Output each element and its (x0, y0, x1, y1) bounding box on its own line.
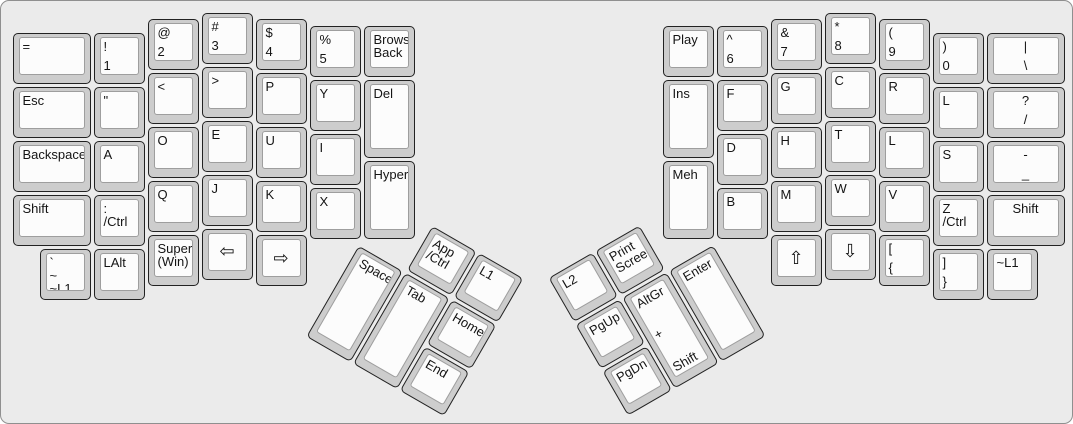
key-label: % (320, 33, 351, 46)
key-face: #3 (208, 17, 247, 55)
key-label: P (266, 80, 297, 93)
key-face: K (262, 185, 301, 223)
key-face: Y (316, 84, 355, 122)
key-meh[interactable]: Meh (663, 161, 714, 239)
key-j[interactable]: J (202, 175, 253, 226)
key-amp-7[interactable]: &7 (771, 19, 822, 70)
key-del[interactable]: Del (364, 80, 415, 158)
key-label: Home (451, 310, 484, 337)
key-label: R (889, 80, 920, 93)
key-label: Esc (23, 94, 81, 107)
key-face: Backspace (19, 145, 85, 183)
key-face: Play (669, 30, 708, 68)
key-label: Y (320, 87, 351, 100)
key-label: O (158, 134, 189, 147)
key-label: Tab (404, 283, 437, 310)
key-label: L2 (560, 263, 593, 290)
key-arrow-up[interactable]: ⇧ (771, 235, 822, 286)
key-label: Shift (1012, 202, 1038, 215)
key-question-slash[interactable]: ?/ (987, 87, 1065, 138)
key-greater-than[interactable]: > (202, 67, 253, 118)
key-face: LAlt (100, 253, 139, 291)
key-face: ]} (939, 253, 978, 291)
key-face: *8 (831, 17, 870, 55)
key-label: Del (374, 87, 405, 100)
key-b[interactable]: B (717, 188, 768, 239)
key-face: |\ (993, 37, 1059, 75)
key-label: 4 (266, 45, 297, 58)
key-face: G (777, 77, 816, 115)
key-label: ^ (727, 33, 758, 46)
key-label: H (781, 134, 812, 147)
key-label: L1 (478, 263, 511, 290)
key-g[interactable]: G (771, 73, 822, 124)
key-a[interactable]: A (94, 141, 145, 192)
key-k[interactable]: K (256, 181, 307, 232)
key-lalt[interactable]: LAlt (94, 249, 145, 300)
key-face: J (208, 179, 247, 217)
key-face: O (154, 131, 193, 169)
key-label: 6 (727, 52, 758, 65)
key-face: Ins (669, 84, 708, 149)
key-o[interactable]: O (148, 127, 199, 178)
key-label: V (889, 188, 920, 201)
key-ins[interactable]: Ins (663, 80, 714, 158)
key-label: ? (1022, 94, 1029, 107)
key-face: Super(Win) (154, 239, 193, 277)
key-face: S (939, 145, 978, 183)
key-label: U (266, 134, 297, 147)
key-label: W (835, 182, 866, 195)
key-label: /Ctrl (943, 215, 974, 228)
key-asterisk-8[interactable]: *8 (825, 13, 876, 64)
key-label: LAlt (104, 256, 135, 269)
key-l-top-row[interactable]: L (933, 87, 984, 138)
key-face: -_ (993, 145, 1059, 183)
key-at-2[interactable]: @2 (148, 19, 199, 70)
key-w[interactable]: W (825, 175, 876, 226)
key-label: End (424, 357, 457, 384)
key-face: ^6 (723, 30, 762, 68)
key-face: " (100, 91, 139, 129)
key-face: !1 (100, 37, 139, 75)
key-face: Shift (993, 199, 1059, 237)
key-label: * (835, 20, 866, 33)
key-hyper[interactable]: Hyper (364, 161, 415, 239)
key-face: ⇦ (208, 233, 247, 271)
key-rparen-0[interactable]: )0 (933, 33, 984, 84)
key-arrow-down[interactable]: ⇩ (825, 229, 876, 280)
key-label: /Ctrl (104, 215, 135, 228)
key-face: > (208, 71, 247, 109)
key-label: 7 (781, 45, 812, 58)
key-label: S (943, 148, 974, 161)
key-label: Hyper (374, 168, 405, 181)
key-label: ~ (50, 269, 81, 282)
key-d[interactable]: D (717, 134, 768, 185)
key-face: Shift (19, 199, 85, 237)
key-lparen-9[interactable]: (9 (879, 19, 930, 70)
key-x[interactable]: X (310, 188, 361, 239)
key-face: (9 (885, 23, 924, 61)
key-face: F (723, 84, 762, 122)
key-grave-tilde-l1[interactable]: `~~L1 (40, 249, 91, 300)
key-equals[interactable]: = (13, 33, 91, 84)
key-s[interactable]: S (933, 141, 984, 192)
key-label: Z (943, 202, 974, 215)
key-label: & (781, 26, 812, 39)
key-face: ⇩ (831, 233, 870, 271)
key-face: BrowserBack (370, 30, 409, 68)
key-label: K (266, 188, 297, 201)
key-dollar-4[interactable]: $4 (256, 19, 307, 70)
key-label: X (320, 195, 351, 208)
key-quote[interactable]: " (94, 87, 145, 138)
key-excl-1[interactable]: !1 (94, 33, 145, 84)
key-pipe-backslash[interactable]: |\ (987, 33, 1065, 84)
key-super-win[interactable]: Super(Win) (148, 235, 199, 286)
key-face: B (723, 192, 762, 230)
key-face: L (885, 131, 924, 169)
key-face: PgUp (582, 306, 635, 358)
key-face: ~L1 (993, 253, 1032, 291)
key-label: ~L1 (50, 282, 81, 291)
key-label: } (943, 275, 974, 288)
key-label: PgDn (614, 357, 647, 384)
key-label: T (835, 128, 866, 141)
key-label: 0 (943, 59, 974, 72)
key-face: = (19, 37, 85, 75)
key-label: ~L1 (997, 256, 1028, 269)
key-label: Shift (23, 202, 81, 215)
key-label: { (889, 261, 920, 274)
key-label: (Win) (158, 255, 189, 268)
key-y[interactable]: Y (310, 80, 361, 131)
key-t[interactable]: T (825, 121, 876, 172)
key-face: M (777, 185, 816, 223)
key-face: Esc (19, 91, 85, 129)
key-label: @ (158, 26, 189, 39)
key-face: E (208, 125, 247, 163)
key-face: V (885, 185, 924, 223)
key-face: < (154, 77, 193, 115)
key-l-home-row[interactable]: L (879, 127, 930, 178)
key-label: Play (673, 33, 704, 46)
key-face: App/Ctrl (417, 232, 470, 284)
key-face: End (409, 352, 462, 404)
key-label: PgUp (587, 310, 620, 337)
key-face: `~~L1 (46, 253, 85, 291)
key-label: Ins (673, 87, 704, 100)
key-face: R (885, 77, 924, 115)
key-label: + (652, 315, 685, 342)
key-label: > (212, 74, 243, 87)
key-f[interactable]: F (717, 80, 768, 131)
key-face: @2 (154, 23, 193, 61)
key-arrow-right[interactable]: ⇨ (256, 235, 307, 286)
key-face: H (777, 131, 816, 169)
key-label: 5 (320, 52, 351, 65)
key-label: F (727, 87, 758, 100)
key-face: L (939, 91, 978, 129)
key-label: M (781, 188, 812, 201)
key-face: Del (370, 84, 409, 149)
key-label: ⇧ (788, 252, 803, 265)
key-label: ⇦ (219, 245, 234, 258)
key-label: I (320, 141, 351, 154)
key-label: 3 (212, 39, 243, 52)
key-face: I (316, 138, 355, 176)
key-label: ⇩ (842, 245, 857, 258)
key-p[interactable]: P (256, 73, 307, 124)
key-label: - (1023, 148, 1027, 161)
key-lbracket-lbrace[interactable]: [{ (879, 235, 930, 286)
key-face: A (100, 145, 139, 183)
key-percent-5[interactable]: %5 (310, 26, 361, 77)
key-caret-6[interactable]: ^6 (717, 26, 768, 77)
key-label: A (104, 148, 135, 161)
key-label: J (212, 182, 243, 195)
key-face: Z/Ctrl (939, 199, 978, 237)
key-label: 1 (104, 59, 135, 72)
key-less-than[interactable]: < (148, 73, 199, 124)
key-colon-ctrl[interactable]: :/Ctrl (94, 195, 145, 246)
key-r[interactable]: R (879, 73, 930, 124)
key-face: PrintScreen (602, 232, 655, 284)
key-m[interactable]: M (771, 181, 822, 232)
key-label: ] (943, 256, 974, 269)
key-label: D (727, 141, 758, 154)
key-label: # (212, 20, 243, 33)
key-shift-left[interactable]: Shift (13, 195, 91, 246)
key-label: C (835, 74, 866, 87)
key-u[interactable]: U (256, 127, 307, 178)
key-face: P (262, 77, 301, 115)
key-hash-3[interactable]: #3 (202, 13, 253, 64)
key-face: ⇧ (777, 239, 816, 277)
key-face: ⇨ (262, 239, 301, 277)
key-label: ) (943, 40, 974, 53)
key-backspace[interactable]: Backspace (13, 141, 91, 192)
key-face: PgDn (609, 352, 662, 404)
key-v[interactable]: V (879, 181, 930, 232)
key-label: L (889, 134, 920, 147)
key-label: B (727, 195, 758, 208)
key-label: 2 (158, 45, 189, 58)
key-label: 8 (835, 39, 866, 52)
key-face: ?/ (993, 91, 1059, 129)
key-browser-back[interactable]: BrowserBack (364, 26, 415, 77)
key-label: < (158, 80, 189, 93)
key-rbracket-rbrace[interactable]: ]} (933, 249, 984, 300)
key-esc[interactable]: Esc (13, 87, 91, 138)
key-face: D (723, 138, 762, 176)
key-face: [{ (885, 239, 924, 277)
key-label: E (212, 128, 243, 141)
key-label: Enter (680, 256, 713, 283)
key-label: ! (104, 40, 135, 53)
key-label: ` (50, 256, 81, 269)
key-label: : (104, 202, 135, 215)
key-label: [ (889, 242, 920, 255)
key-arrow-left[interactable]: ⇦ (202, 229, 253, 280)
key-label: Q (158, 188, 189, 201)
key-e[interactable]: E (202, 121, 253, 172)
key-face: $4 (262, 23, 301, 61)
key-face: %5 (316, 30, 355, 68)
keyboard-layout: =!1@2#3$4%5BrowserBackEsc"<>PYDelBackspa… (0, 0, 1073, 424)
key-face: T (831, 125, 870, 163)
key-face: Meh (669, 165, 708, 230)
key-label: L (943, 94, 974, 107)
key-face: Home (436, 306, 489, 358)
key-label: " (104, 94, 135, 107)
key-face: )0 (939, 37, 978, 75)
key-label: $ (266, 26, 297, 39)
key-z-ctrl[interactable]: Z/Ctrl (933, 195, 984, 246)
key-label: Backspace (23, 148, 81, 161)
key-face: &7 (777, 23, 816, 61)
key-label: Meh (673, 168, 704, 181)
key-shift-right[interactable]: Shift (987, 195, 1065, 246)
key-tilde-l1[interactable]: ~L1 (987, 249, 1038, 300)
key-face: Q (154, 185, 193, 223)
key-face: L1 (463, 259, 516, 311)
key-label: _ (1022, 167, 1029, 180)
key-label: \ (1024, 59, 1028, 72)
key-label: ⇨ (273, 252, 288, 265)
key-face: L2 (555, 259, 608, 311)
key-label: G (781, 80, 812, 93)
key-face: :/Ctrl (100, 199, 139, 237)
key-face: U (262, 131, 301, 169)
key-face: W (831, 179, 870, 217)
key-i[interactable]: I (310, 134, 361, 185)
key-label: Space (357, 256, 390, 283)
key-h[interactable]: H (771, 127, 822, 178)
key-label: AltGr (634, 283, 667, 310)
key-label: / (1024, 113, 1028, 126)
key-label: 9 (889, 45, 920, 58)
key-play[interactable]: Play (663, 26, 714, 77)
key-label: = (23, 40, 81, 53)
key-q[interactable]: Q (148, 181, 199, 232)
key-label: Shift (670, 346, 703, 373)
key-c[interactable]: C (825, 67, 876, 118)
key-label: | (1024, 40, 1027, 53)
key-label: ( (889, 26, 920, 39)
key-face: C (831, 71, 870, 109)
key-label: Back (374, 46, 405, 59)
key-face: Hyper (370, 165, 409, 230)
key-face: X (316, 192, 355, 230)
key-dash-underscore[interactable]: -_ (987, 141, 1065, 192)
